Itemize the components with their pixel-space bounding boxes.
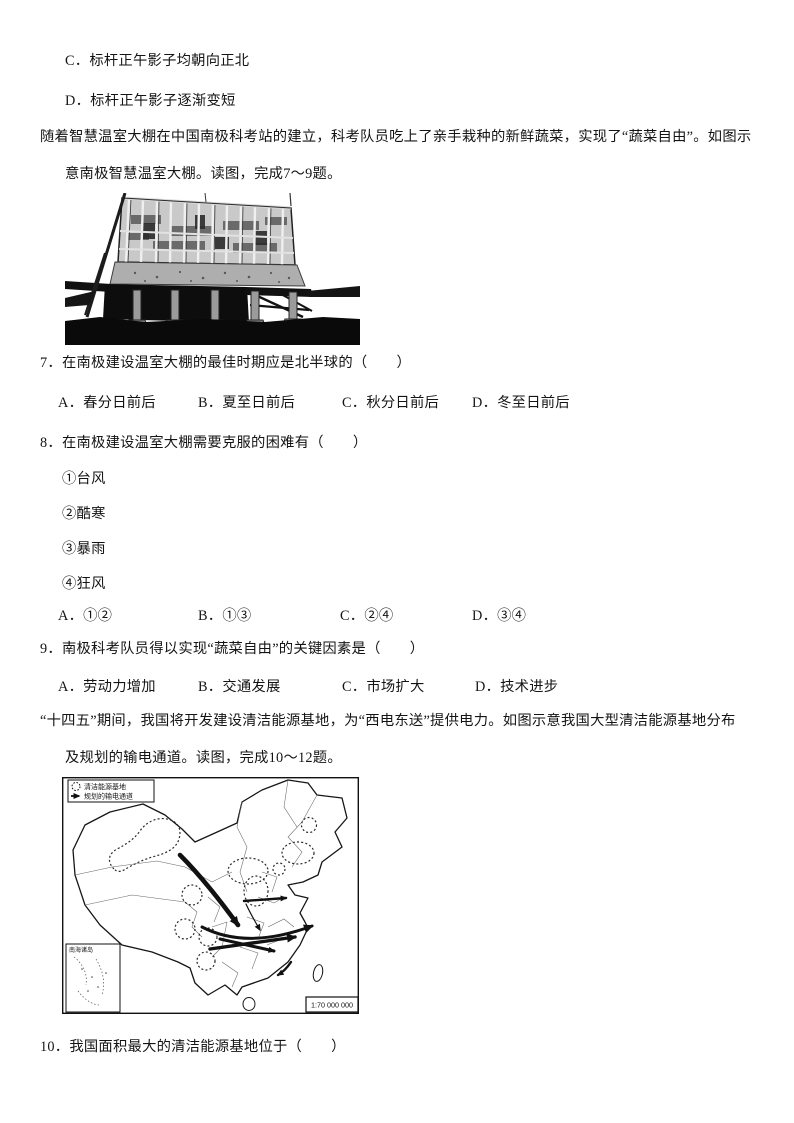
- legend-base-label: 清洁能源基地: [84, 782, 126, 791]
- prior-option-d: D．标杆正午影子逐渐变短: [65, 92, 236, 111]
- q8-item-3: ③暴雨: [62, 540, 106, 559]
- prior-option-c: C．标杆正午影子均朝向正北: [65, 52, 249, 71]
- map-scale: 1:70 000 000: [306, 997, 358, 1012]
- greenhouse-platform: [110, 262, 305, 286]
- greenhouse-photo: [65, 193, 360, 345]
- photo-ground: [65, 317, 360, 345]
- q8-item-2: ②酷寒: [62, 505, 106, 524]
- q7-stem: 7．在南极建设温室大棚的最佳时期应是北半球的（ ）: [40, 354, 411, 373]
- q9-option-b: B．交通发展: [198, 678, 281, 697]
- q8-item-4: ④狂风: [62, 575, 106, 594]
- q8-option-d: D．③④: [472, 607, 526, 626]
- q8-option-c: C．②④: [340, 607, 393, 626]
- china-energy-map: 清洁能源基地 规划的输电通道 南海诸岛 1:70 000 000: [62, 777, 359, 1014]
- q8-option-b: B．①③: [198, 607, 251, 626]
- q8-stem: 8．在南极建设温室大棚需要克服的困难有（ ）: [40, 434, 367, 453]
- q7-option-b: B．夏至日前后: [198, 394, 295, 413]
- inset-label: 南海诸岛: [69, 946, 93, 954]
- south-china-sea-inset: 南海诸岛: [66, 944, 120, 1012]
- passage-energy-line1: “十四五”期间，我国将开发建设清洁能源基地，为“西电东送”提供电力。如图示意我国…: [40, 712, 736, 731]
- q9-stem: 9．南极科考队员得以实现“蔬菜自由”的关键因素是（ ）: [40, 640, 424, 659]
- q8-item-1: ①台风: [62, 470, 106, 489]
- legend-channel-label: 规划的输电通道: [84, 792, 133, 801]
- exam-page: C．标杆正午影子均朝向正北 D．标杆正午影子逐渐变短 随着智慧温室大棚在中国南极…: [0, 0, 794, 1123]
- passage-energy-line2: 及规划的输电通道。读图，完成10～12题。: [65, 749, 342, 768]
- hainan-island: [243, 998, 255, 1011]
- passage-greenhouse-line2: 意南极智慧温室大棚。读图，完成7～9题。: [65, 165, 342, 184]
- q10-stem: 10．我国面积最大的清洁能源基地位于（ ）: [40, 1038, 346, 1057]
- map-legend: 清洁能源基地 规划的输电通道: [68, 780, 154, 802]
- q8-option-a: A．①②: [58, 607, 112, 626]
- scale-label: 1:70 000 000: [311, 1001, 353, 1010]
- q7-option-c: C．秋分日前后: [342, 394, 439, 413]
- passage-greenhouse-line1: 随着智慧温室大棚在中国南极科考站的建立，科考队员吃上了亲手栽种的新鲜蔬菜，实现了…: [40, 128, 751, 147]
- q9-option-a: A．劳动力增加: [58, 678, 156, 697]
- q7-option-a: A．春分日前后: [58, 394, 156, 413]
- q9-option-d: D．技术进步: [475, 678, 558, 697]
- q7-option-d: D．冬至日前后: [472, 394, 570, 413]
- q9-option-c: C．市场扩大: [342, 678, 425, 697]
